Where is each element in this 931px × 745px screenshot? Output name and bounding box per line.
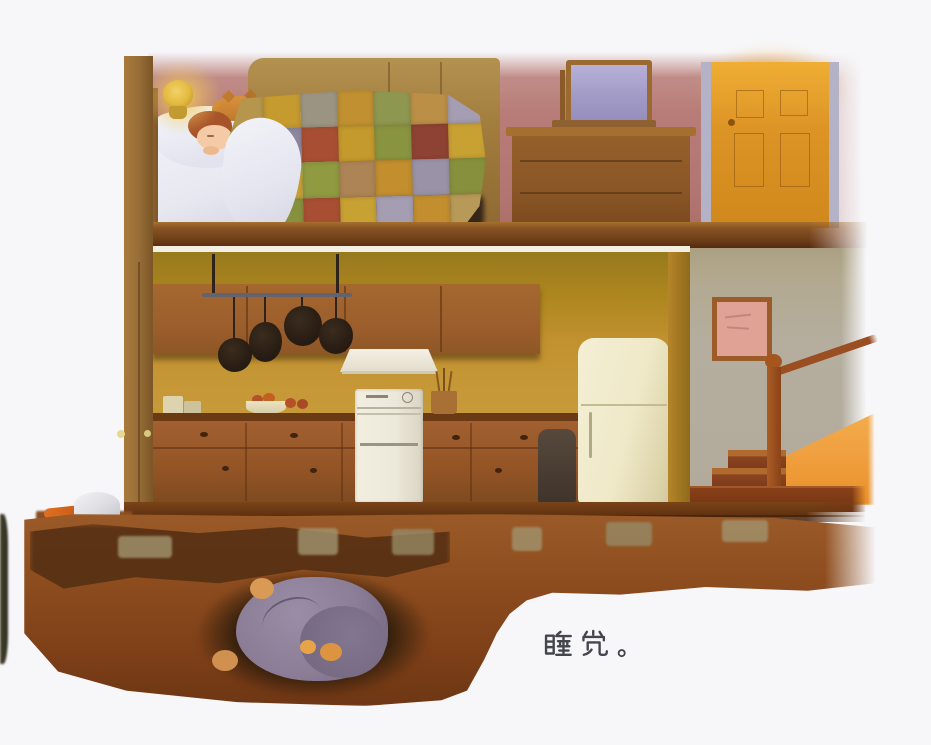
utensil-crock bbox=[431, 391, 457, 414]
back-door-seam bbox=[138, 262, 140, 502]
foundation-stone bbox=[722, 520, 768, 542]
child-closed-eye bbox=[207, 135, 214, 137]
door-pull-icon bbox=[222, 466, 229, 471]
door-jamb bbox=[701, 62, 711, 228]
quilt-patch bbox=[339, 161, 377, 197]
door-pull-icon bbox=[310, 468, 317, 473]
drawer-pull-icon bbox=[290, 433, 298, 438]
stove-knob-icon bbox=[366, 395, 388, 398]
range-hood-base bbox=[342, 371, 436, 374]
lamp-base bbox=[169, 106, 187, 119]
mole-paw bbox=[320, 643, 342, 661]
stove-line bbox=[357, 413, 421, 415]
bedroom-door bbox=[711, 62, 829, 228]
oven-handle bbox=[360, 443, 418, 446]
quilt-patch bbox=[448, 122, 486, 158]
newel-post bbox=[767, 367, 781, 491]
hanging-pan bbox=[218, 338, 252, 372]
drawer-pull-icon bbox=[200, 432, 208, 437]
oil-lamp-icon bbox=[163, 80, 193, 108]
divider-post bbox=[668, 252, 690, 504]
caption-glyphs bbox=[540, 628, 632, 662]
fridge-divider bbox=[581, 404, 667, 406]
drawer-pull-icon bbox=[452, 435, 460, 440]
quilt-patch bbox=[374, 89, 412, 125]
back-door-knob-icon bbox=[144, 430, 151, 437]
quilt-patch bbox=[374, 124, 412, 160]
door-panel bbox=[734, 133, 764, 187]
hanging-pan bbox=[319, 318, 353, 354]
foundation-stone bbox=[392, 529, 434, 555]
caption-text: 睡觉。 bbox=[540, 628, 632, 662]
stove-line bbox=[357, 407, 421, 409]
foundation-stone bbox=[512, 527, 542, 551]
quilt-patch bbox=[412, 159, 450, 195]
door-knob-icon bbox=[728, 119, 735, 126]
rail-rod bbox=[212, 254, 215, 296]
door-panel bbox=[780, 90, 808, 116]
stove-dial-icon bbox=[402, 392, 413, 403]
quilt-patch bbox=[300, 91, 338, 127]
dresser bbox=[512, 136, 690, 226]
bedroom-floor bbox=[124, 222, 868, 248]
apple bbox=[285, 398, 296, 408]
mole-paw bbox=[212, 650, 238, 671]
door-panel bbox=[736, 90, 764, 118]
dresser-drawer-line bbox=[520, 160, 682, 162]
quilt-patch bbox=[302, 161, 340, 197]
fridge-handle bbox=[589, 412, 592, 458]
drawer-pull-icon bbox=[520, 435, 528, 440]
utensil bbox=[443, 368, 445, 393]
mirror-post bbox=[560, 70, 565, 124]
pan-hook bbox=[233, 297, 235, 341]
page-gutter-shadow bbox=[0, 514, 8, 664]
quilt-patch bbox=[375, 160, 413, 196]
cabinet-seam bbox=[470, 423, 472, 501]
child-hand bbox=[203, 146, 219, 155]
mole-nose-icon bbox=[300, 640, 316, 654]
apple bbox=[297, 399, 308, 409]
door-panel bbox=[780, 133, 810, 187]
quilt-patch bbox=[337, 90, 375, 126]
cabinet-seam bbox=[245, 423, 247, 501]
foundation-stone bbox=[118, 536, 172, 558]
trash-bin bbox=[538, 429, 576, 503]
door-pull-icon bbox=[495, 468, 502, 473]
mole-paw bbox=[250, 578, 274, 599]
range-hood bbox=[340, 349, 438, 372]
quilt-patch bbox=[411, 123, 449, 159]
quilt-patch bbox=[338, 125, 376, 161]
quilt-patch bbox=[449, 158, 487, 194]
book-page: 睡觉。 bbox=[0, 0, 931, 745]
foundation-stone bbox=[606, 522, 652, 546]
pot-rail bbox=[202, 293, 352, 297]
pan-hook bbox=[264, 297, 266, 325]
foundation-stone bbox=[298, 528, 338, 555]
dresser-top bbox=[506, 127, 696, 136]
cabinet-seam bbox=[440, 286, 442, 352]
hanging-skillet bbox=[284, 306, 322, 346]
dresser-drawer-line bbox=[520, 192, 682, 194]
quilt-patch bbox=[301, 126, 339, 162]
cabinet-seam bbox=[341, 423, 343, 501]
back-door-knob-icon bbox=[117, 430, 125, 438]
hanging-pot bbox=[249, 322, 282, 362]
rail-rod bbox=[336, 254, 339, 296]
door-jamb bbox=[829, 62, 839, 228]
